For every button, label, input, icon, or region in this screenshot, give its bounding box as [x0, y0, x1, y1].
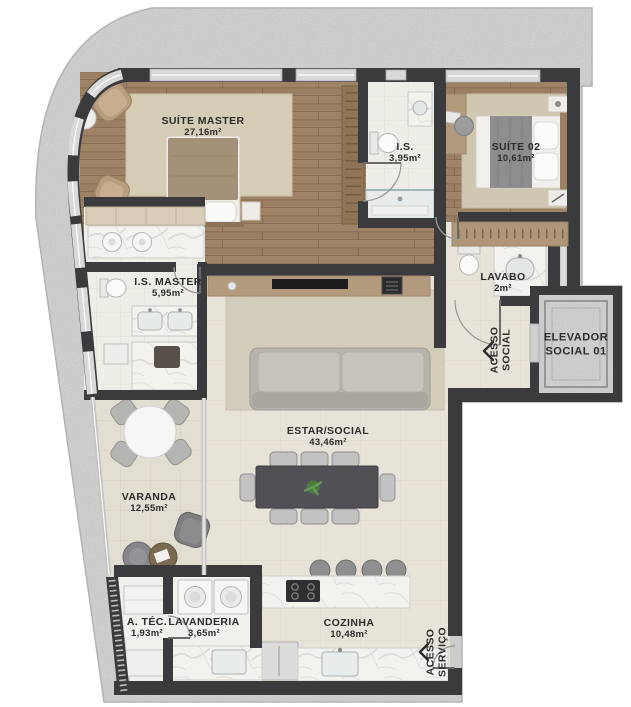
master-closet — [86, 207, 205, 225]
master-nightstand-right — [242, 202, 260, 220]
desk-chair — [455, 117, 474, 136]
master-vanity-area — [88, 226, 204, 258]
round-table — [124, 406, 176, 458]
suite-02-left-wall — [434, 68, 446, 222]
kitchen-sink — [322, 652, 358, 676]
is-master-top-wall — [84, 262, 176, 272]
suite-master-closet-wall — [84, 197, 205, 207]
suite-02-closet — [452, 222, 568, 246]
tech-right-wall — [163, 577, 173, 614]
toilet-tank — [370, 132, 378, 154]
is-suite-left-wall — [358, 75, 368, 163]
is-master-bottom-wall — [84, 390, 207, 400]
top-windows — [150, 69, 540, 82]
floorplan-page: SUÍTE MASTER 27,16m² I.S. 3,95m² SUÍTE 0… — [0, 0, 631, 707]
glass-panel — [560, 240, 567, 290]
suite-02-bed — [476, 112, 568, 192]
suite-02-bench — [548, 190, 568, 206]
hall-divider-wall — [434, 222, 446, 348]
is-master-right-wall — [197, 264, 207, 400]
tv-console — [208, 276, 430, 296]
tv — [272, 279, 348, 289]
elevator-cab — [530, 295, 613, 393]
right-wall — [567, 68, 580, 292]
floorplan-canvas — [0, 0, 631, 707]
media-wall — [203, 264, 434, 276]
toilet-bowl — [378, 134, 398, 153]
cooktop — [286, 580, 320, 602]
kitchen-back-counter — [260, 642, 448, 681]
suite-02-bottom-wall — [458, 212, 568, 222]
kitchen-right-wall — [448, 402, 462, 636]
elevator-door — [530, 324, 539, 362]
suite-02-nightstand — [548, 96, 568, 112]
bottom-wall — [114, 681, 462, 695]
laundry-counter — [170, 646, 262, 680]
laundry-top-wall — [114, 565, 262, 577]
laundry-right-wall — [250, 577, 262, 648]
is-suite-bottom-wall — [358, 218, 446, 228]
sofa — [250, 348, 430, 410]
